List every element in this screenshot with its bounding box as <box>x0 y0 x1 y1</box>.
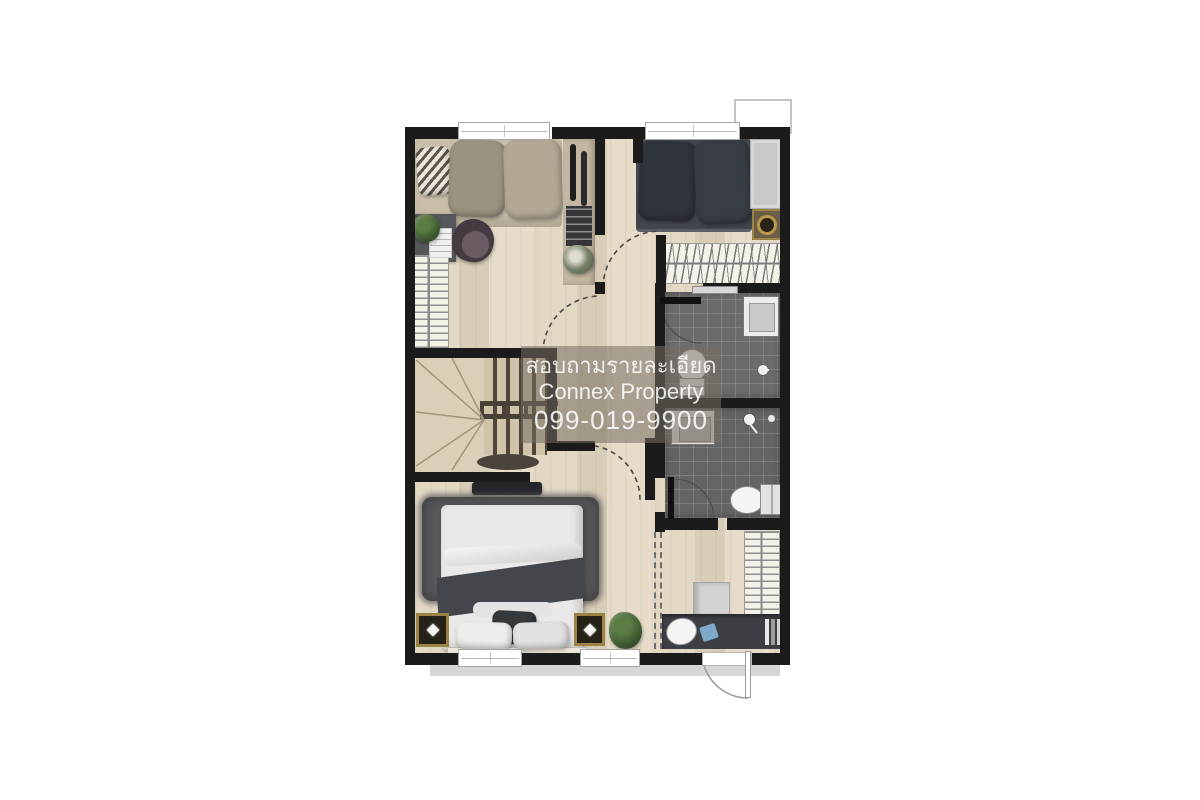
watermark-line3: 099-019-9900 <box>521 405 721 436</box>
wall-left <box>405 127 415 665</box>
watermark: สอบถามรายละเอียด Connex Property 099-019… <box>521 346 721 443</box>
door-arc-bedroom-right <box>603 231 660 288</box>
shower-stem <box>750 424 757 433</box>
wall-bottom <box>522 653 580 665</box>
wall-bottom <box>640 653 702 665</box>
bathroom-lower-door-leaf <box>668 477 674 519</box>
wall-stub <box>595 282 605 294</box>
wall-stair-bottom <box>405 472 530 482</box>
towel-rail <box>692 286 738 294</box>
window <box>458 122 550 140</box>
door-arc-bedroom-left <box>543 296 600 353</box>
wall-jog <box>645 438 655 500</box>
wall-bath-bottom <box>655 518 718 530</box>
watermark-line1: สอบถามรายละเอียด <box>521 353 721 379</box>
balcony-door-leaf <box>745 651 751 698</box>
bathroom-upper-door-leaf <box>660 297 701 304</box>
watermark-line2: Connex Property <box>521 379 721 405</box>
door-arc-bath-lower <box>674 479 714 519</box>
door-arc-bath-upper <box>661 303 701 343</box>
wall-bedroom-divider <box>595 137 605 235</box>
stair-winder-lines <box>416 358 484 470</box>
floor-plan-canvas: สอบถามรายละเอียด Connex Property 099-019… <box>0 0 1200 800</box>
window <box>580 649 640 667</box>
wall-stub <box>633 137 643 163</box>
window <box>458 649 522 667</box>
door-arc-master <box>585 445 640 500</box>
window <box>645 122 740 140</box>
wall-right <box>780 127 790 665</box>
wall-bath-bottom <box>727 518 790 530</box>
